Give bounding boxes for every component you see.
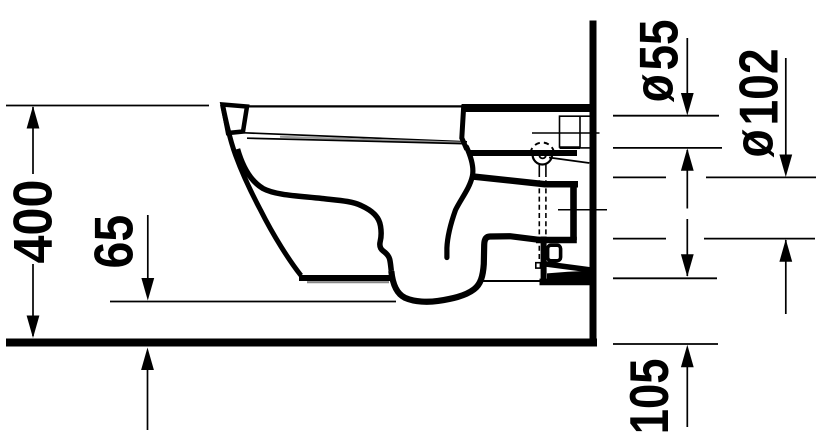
svg-text:ø102: ø102 <box>722 48 789 157</box>
svg-text:400: 400 <box>2 180 64 264</box>
svg-text:65: 65 <box>83 215 145 269</box>
svg-text:ø55: ø55 <box>622 19 689 102</box>
svg-text:105: 105 <box>618 359 680 435</box>
